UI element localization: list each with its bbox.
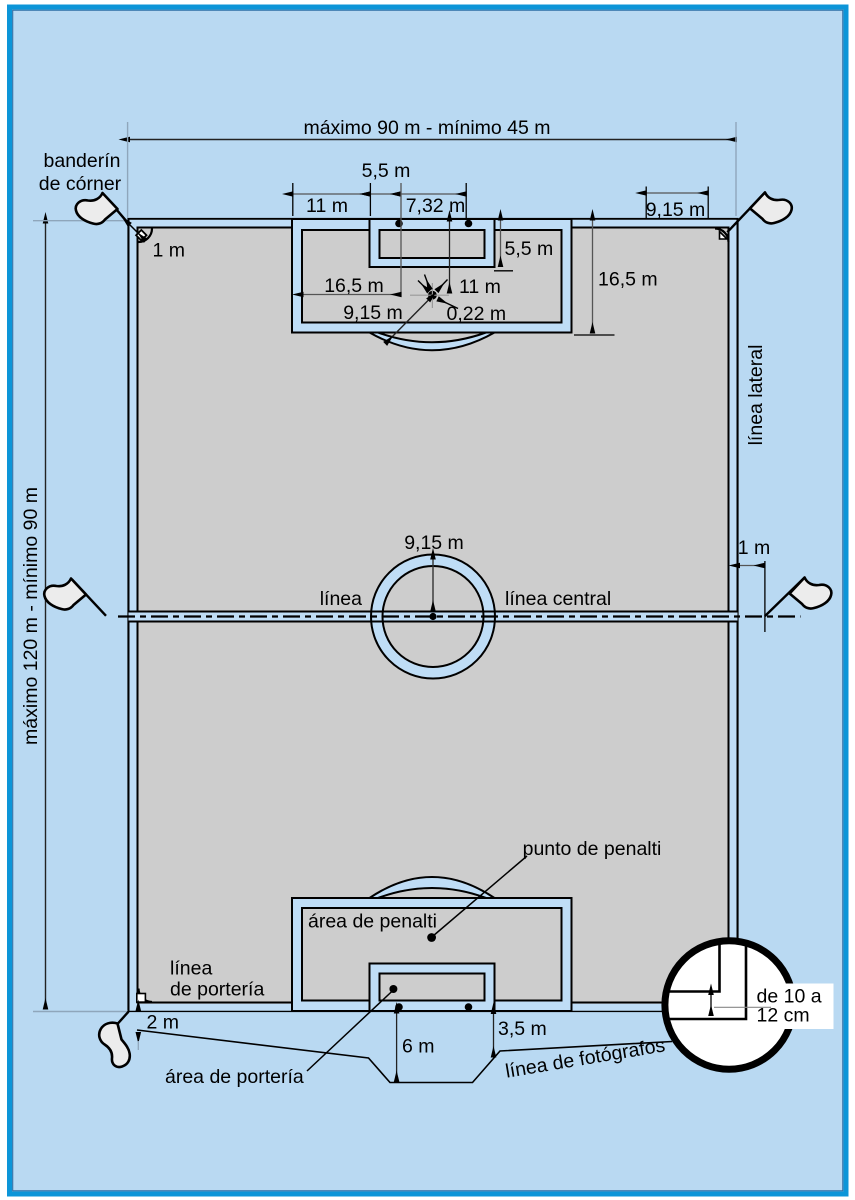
svg-text:línea: línea xyxy=(170,958,212,980)
svg-text:9,15 m: 9,15 m xyxy=(646,199,706,221)
svg-text:12 cm: 12 cm xyxy=(757,1005,810,1027)
svg-text:16,5 m: 16,5 m xyxy=(598,269,658,291)
svg-text:16,5 m: 16,5 m xyxy=(324,275,384,297)
svg-text:línea lateral: línea lateral xyxy=(745,345,767,446)
svg-text:11 m: 11 m xyxy=(459,276,501,298)
svg-text:0,22 m: 0,22 m xyxy=(447,303,507,325)
svg-text:de portería: de portería xyxy=(170,979,264,1001)
svg-text:6 m: 6 m xyxy=(402,1036,435,1058)
svg-text:punto de penalti: punto de penalti xyxy=(523,838,662,860)
svg-text:9,15 m: 9,15 m xyxy=(343,302,403,324)
svg-text:banderín: banderín xyxy=(44,150,121,172)
svg-text:máximo 90 m - mínimo 45 m: máximo 90 m - mínimo 45 m xyxy=(303,117,550,139)
svg-text:1 m: 1 m xyxy=(738,537,771,559)
svg-text:7,32 m: 7,32 m xyxy=(406,195,466,217)
svg-text:máximo 120 m - mínimo 90 m: máximo 120 m - mínimo 90 m xyxy=(20,487,42,745)
svg-text:3,5 m: 3,5 m xyxy=(498,1018,547,1040)
svg-text:área de penalti: área de penalti xyxy=(308,911,437,933)
svg-text:9,15 m: 9,15 m xyxy=(404,532,464,554)
svg-text:línea: línea xyxy=(320,588,362,610)
svg-text:área de portería: área de portería xyxy=(165,1066,304,1088)
svg-text:11 m: 11 m xyxy=(306,195,348,217)
svg-text:de córner: de córner xyxy=(39,173,122,195)
svg-text:1 m: 1 m xyxy=(153,240,186,262)
svg-text:5,5 m: 5,5 m xyxy=(362,160,411,182)
svg-text:2 m: 2 m xyxy=(147,1012,180,1034)
svg-text:línea central: línea central xyxy=(505,588,611,610)
svg-text:5,5 m: 5,5 m xyxy=(505,238,554,260)
